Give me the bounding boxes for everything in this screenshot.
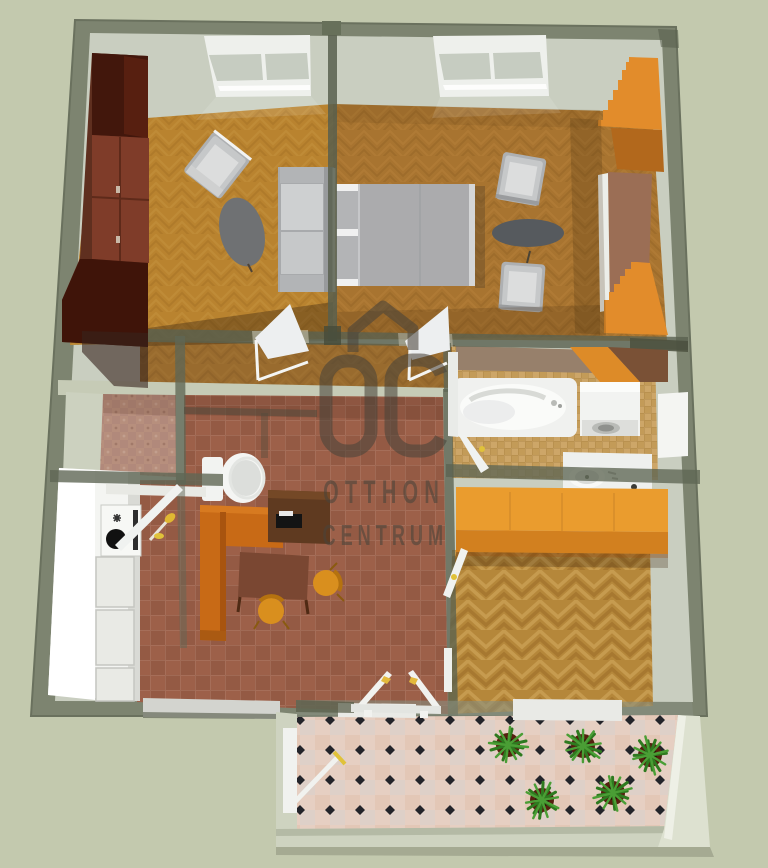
svg-text:CENTRUM: CENTRUM: [323, 520, 449, 552]
svg-text:OTTHON: OTTHON: [323, 474, 445, 510]
